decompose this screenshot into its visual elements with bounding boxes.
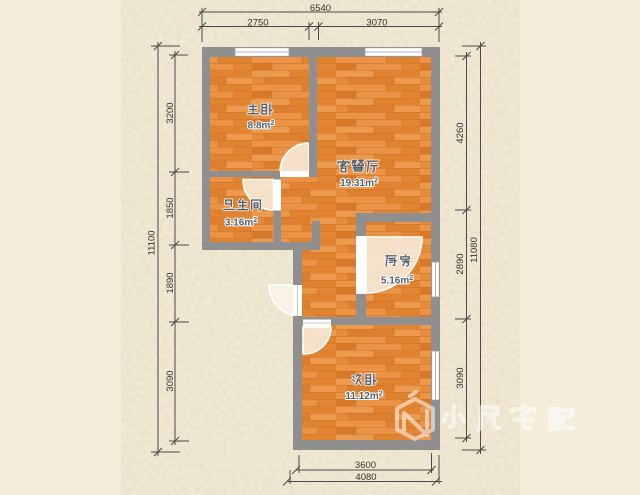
svg-text:11.12m2: 11.12m2 — [345, 391, 382, 403]
svg-text:19.31m2: 19.31m2 — [340, 178, 378, 190]
svg-text:11100: 11100 — [147, 230, 158, 255]
svg-text:2750: 2750 — [247, 18, 268, 29]
svg-text:3.16m2: 3.16m2 — [225, 217, 257, 229]
svg-text:8.8m2: 8.8m2 — [248, 120, 275, 132]
svg-text:3600: 3600 — [355, 460, 376, 471]
svg-text:3200: 3200 — [165, 102, 176, 123]
svg-text:3070: 3070 — [366, 18, 387, 29]
svg-text:5.16m2: 5.16m2 — [381, 275, 413, 287]
svg-text:3090: 3090 — [455, 367, 466, 388]
svg-text:6540: 6540 — [310, 3, 331, 14]
svg-text:11080: 11080 — [469, 237, 480, 263]
svg-text:1850: 1850 — [165, 197, 176, 218]
svg-text:2890: 2890 — [455, 253, 466, 274]
svg-text:4260: 4260 — [455, 122, 466, 143]
svg-text:1890: 1890 — [165, 272, 176, 293]
svg-text:4080: 4080 — [355, 472, 376, 483]
svg-text:3090: 3090 — [165, 370, 176, 391]
